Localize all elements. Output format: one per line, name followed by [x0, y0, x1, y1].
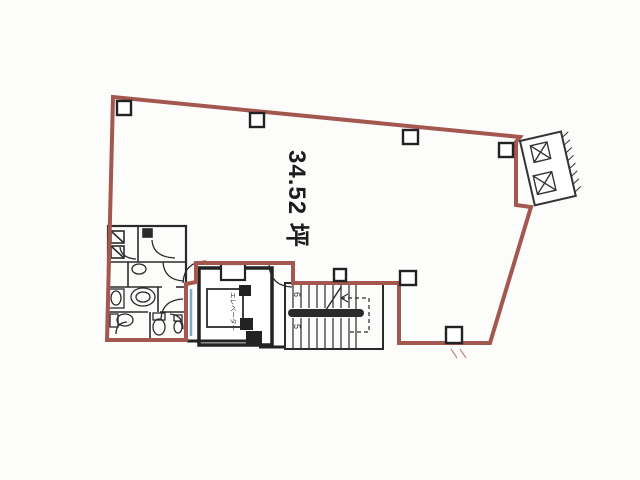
restroom-block [108, 226, 186, 340]
floor-plan-drawing: エレベーター 6 5 [0, 0, 640, 480]
demised-area-outline [107, 97, 531, 343]
floor-plan-page: エレベーター 6 5 [0, 0, 640, 480]
sink-icon [109, 264, 155, 308]
column-icon [400, 271, 416, 285]
scan-tick-marks [451, 349, 466, 358]
column-icon [403, 130, 418, 144]
column-icon [250, 113, 264, 127]
elevator-label: エレベーター [229, 292, 238, 331]
elevator-door-jamb [240, 318, 253, 330]
elevator-core: エレベーター [187, 264, 286, 347]
stair-upper-number: 6 [292, 292, 302, 297]
elevator-lobby-doorframe [221, 264, 245, 280]
floor-area-label: 34.52 坪 [280, 150, 312, 246]
column-icon [446, 327, 462, 343]
elevator-door-jamb [239, 285, 251, 296]
kitchenette-unit [520, 130, 583, 205]
structural-columns [117, 101, 513, 343]
column-icon [334, 269, 346, 281]
duct-icon [143, 229, 152, 237]
wall-post [246, 331, 262, 344]
staircase: 6 5 [285, 283, 383, 349]
column-icon [499, 143, 513, 157]
column-icon [117, 101, 131, 115]
stair-lower-number: 5 [292, 324, 302, 329]
